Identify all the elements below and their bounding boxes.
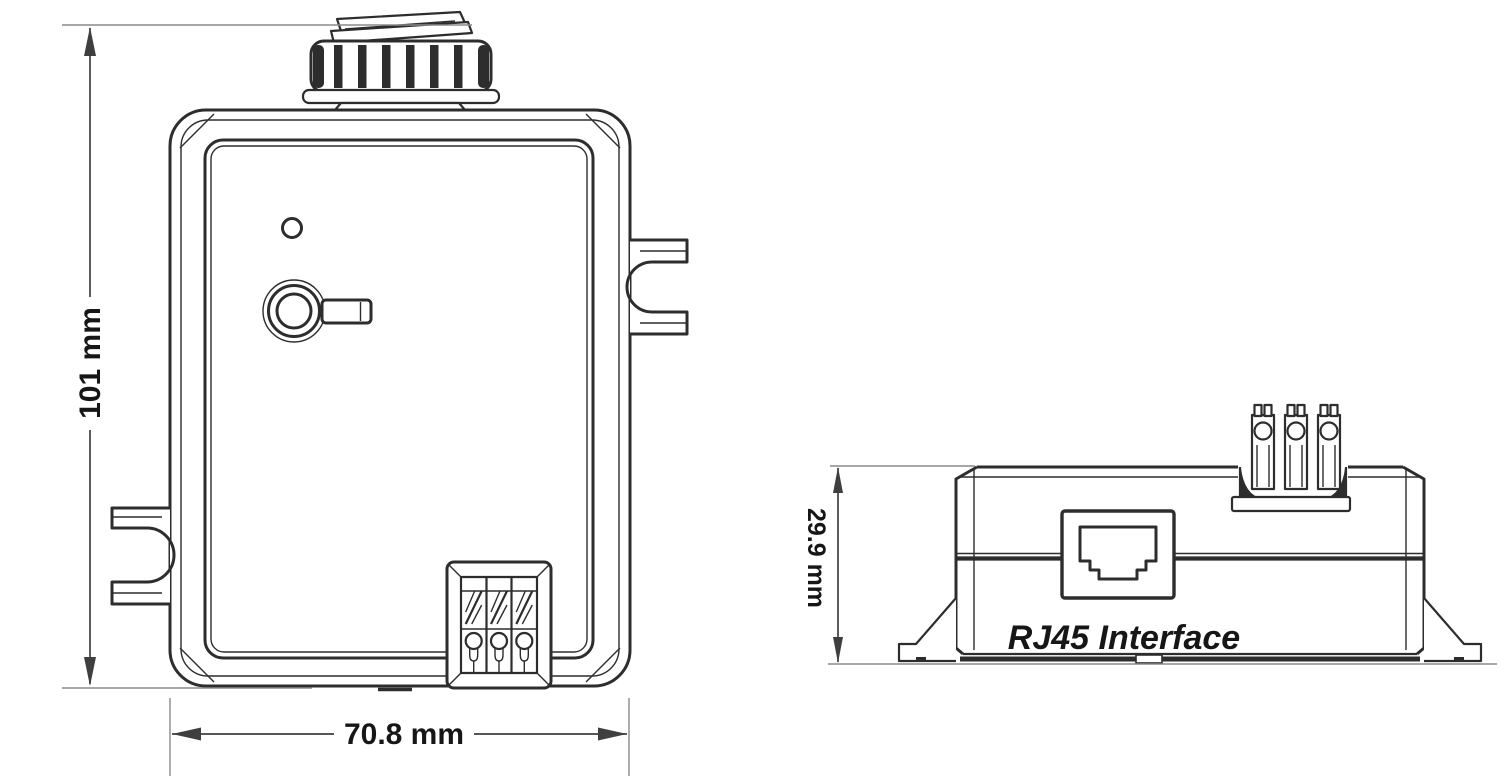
arrow-right-icon [598,728,627,741]
arrow-down-icon [833,637,843,663]
terminal-block-side [1232,405,1350,511]
knurled-knob [303,12,499,110]
terminal-block-front [447,562,551,688]
arrow-left-icon [172,728,201,741]
arrow-up-icon [833,467,843,493]
arrow-down-icon [84,657,96,686]
dimension-drawing: 101 mm 70.8 mm [0,0,1500,779]
mount-foot-right [1424,598,1481,662]
side-height-label: 29.9 mm [802,508,830,608]
front-view: 101 mm 70.8 mm [62,12,687,776]
side-view: 29.9 mm RJ45 Interface [802,405,1497,664]
width-dimension: 70.8 mm [170,698,629,776]
rj45-port [1062,511,1174,598]
dimension-drawing-canvas: 101 mm 70.8 mm [0,0,1500,779]
mount-tab-right [627,240,687,334]
arrow-up-icon [84,27,96,56]
front-width-label: 70.8 mm [344,718,464,751]
enclosure-body [170,110,630,690]
front-height-label: 101 mm [74,307,107,419]
mount-foot-left [899,598,956,662]
rj45-interface-label: RJ45 Interface [1008,619,1240,657]
mount-tab-left [112,508,174,604]
